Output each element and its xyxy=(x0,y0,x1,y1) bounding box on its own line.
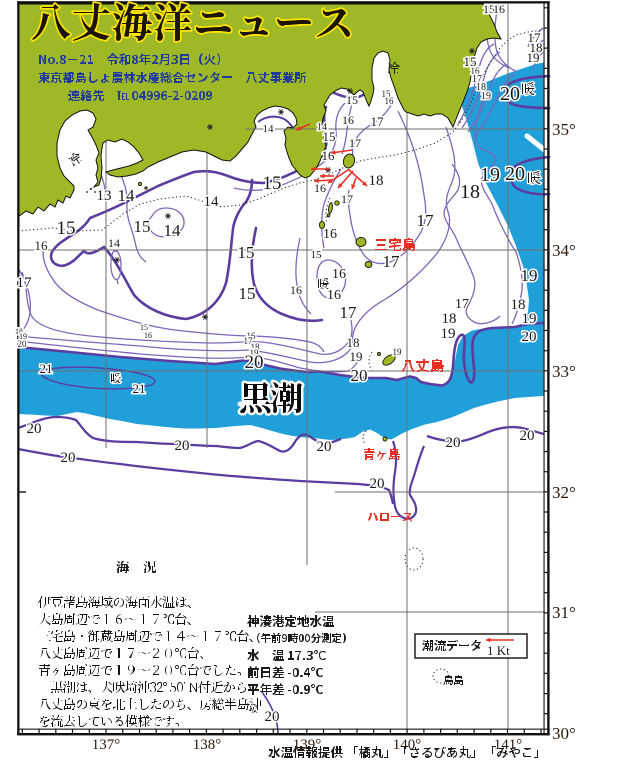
svg-text:15: 15 xyxy=(238,243,255,262)
svg-text:19: 19 xyxy=(522,311,537,327)
svg-text:140°: 140° xyxy=(393,737,422,753)
svg-text:18: 18 xyxy=(442,311,457,327)
svg-text:16: 16 xyxy=(322,148,336,163)
svg-text:21: 21 xyxy=(40,361,53,376)
svg-text:15: 15 xyxy=(323,129,336,144)
svg-text:137°: 137° xyxy=(92,737,121,753)
svg-text:1 Kt: 1 Kt xyxy=(487,643,510,658)
svg-text:15: 15 xyxy=(263,173,282,194)
svg-text:34°: 34° xyxy=(552,241,576,260)
svg-text:138°: 138° xyxy=(193,737,222,753)
svg-text:17: 17 xyxy=(417,211,435,230)
svg-text:20: 20 xyxy=(18,339,28,349)
svg-text:18: 18 xyxy=(347,335,360,350)
svg-text:20: 20 xyxy=(505,163,525,185)
svg-text:16: 16 xyxy=(290,283,302,297)
svg-text:31°: 31° xyxy=(552,603,576,622)
svg-text:20: 20 xyxy=(265,709,280,725)
svg-text:16: 16 xyxy=(35,238,49,253)
svg-text:19: 19 xyxy=(441,326,456,342)
svg-text:15: 15 xyxy=(311,249,323,261)
svg-text:16: 16 xyxy=(144,331,152,340)
svg-text:14: 14 xyxy=(263,123,275,135)
svg-text:19: 19 xyxy=(393,347,403,357)
svg-text:14: 14 xyxy=(118,186,136,205)
svg-text:20: 20 xyxy=(351,366,368,385)
svg-text:17: 17 xyxy=(383,252,401,271)
svg-text:16: 16 xyxy=(493,2,505,16)
svg-text:139°: 139° xyxy=(293,737,322,753)
svg-text:20: 20 xyxy=(500,83,520,105)
svg-text:16: 16 xyxy=(385,96,395,106)
svg-text:16: 16 xyxy=(332,267,346,282)
svg-text:16: 16 xyxy=(342,113,354,127)
svg-text:16: 16 xyxy=(314,181,326,195)
svg-text:20: 20 xyxy=(370,476,385,492)
svg-text:17: 17 xyxy=(341,192,353,206)
svg-text:20: 20 xyxy=(175,438,190,454)
svg-text:15: 15 xyxy=(346,93,358,107)
svg-text:19: 19 xyxy=(521,266,538,285)
svg-text:15: 15 xyxy=(239,284,256,303)
svg-text:20: 20 xyxy=(522,329,537,345)
svg-text:15: 15 xyxy=(134,217,151,236)
svg-text:19: 19 xyxy=(480,164,500,186)
svg-text:32°: 32° xyxy=(552,483,576,502)
svg-text:17: 17 xyxy=(455,297,469,312)
svg-text:20: 20 xyxy=(520,428,535,444)
svg-text:16: 16 xyxy=(323,227,337,242)
svg-text:16: 16 xyxy=(327,288,341,303)
svg-text:21: 21 xyxy=(133,381,146,396)
svg-text:18: 18 xyxy=(460,181,480,203)
svg-text:35°: 35° xyxy=(552,120,576,139)
svg-text:14: 14 xyxy=(164,221,182,240)
svg-text:19: 19 xyxy=(527,50,540,65)
svg-text:30°: 30° xyxy=(552,724,576,743)
svg-text:14: 14 xyxy=(108,236,120,250)
svg-text:13: 13 xyxy=(97,188,112,204)
svg-text:141°: 141° xyxy=(494,737,523,753)
svg-text:17: 17 xyxy=(349,136,361,150)
svg-text:20: 20 xyxy=(27,421,42,437)
svg-text:19: 19 xyxy=(481,91,491,102)
svg-text:20: 20 xyxy=(317,439,332,455)
svg-text:18: 18 xyxy=(369,173,384,189)
svg-text:20: 20 xyxy=(245,352,264,373)
svg-text:14: 14 xyxy=(204,194,220,210)
svg-text:19: 19 xyxy=(350,349,363,364)
svg-text:20: 20 xyxy=(61,450,76,466)
svg-text:20: 20 xyxy=(446,435,461,451)
svg-text:15: 15 xyxy=(57,218,76,239)
svg-text:17: 17 xyxy=(371,114,385,129)
svg-text:33°: 33° xyxy=(552,362,576,381)
svg-text:17: 17 xyxy=(340,303,358,322)
svg-text:17: 17 xyxy=(17,275,33,291)
